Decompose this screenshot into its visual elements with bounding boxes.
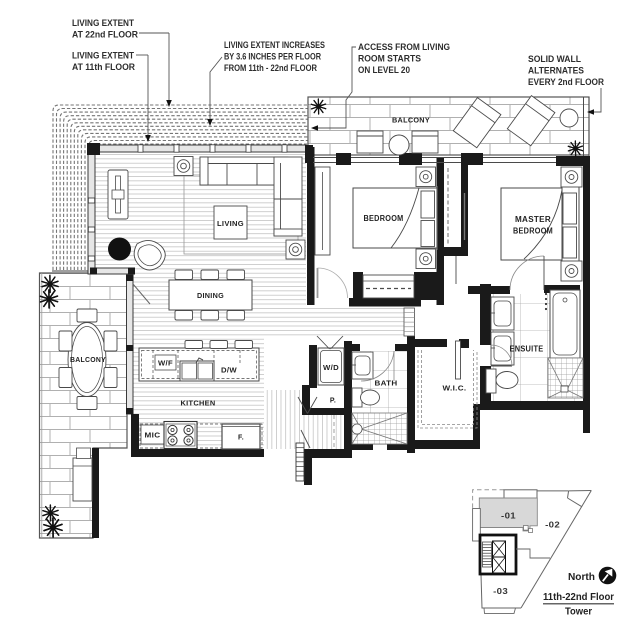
svg-text:W/D: W/D [323,365,339,372]
svg-text:LIVING EXTENT: LIVING EXTENT [72,50,134,61]
svg-text:LIVING EXTENT INCREASES: LIVING EXTENT INCREASES [224,39,325,50]
svg-text:Tower: Tower [565,606,592,618]
svg-text:DINING: DINING [197,291,224,300]
svg-text:W.I.C.: W.I.C. [443,384,467,393]
svg-text:11th-22nd Floor: 11th-22nd Floor [543,591,614,603]
svg-text:MASTER: MASTER [515,215,551,224]
svg-text:North: North [568,571,595,583]
svg-text:BEDROOM: BEDROOM [364,214,404,223]
svg-text:F.: F. [238,435,244,442]
svg-text:ALTERNATES: ALTERNATES [528,65,584,76]
svg-text:BATH: BATH [375,379,398,388]
svg-text:AT 11th FLOOR: AT 11th FLOOR [72,61,135,72]
svg-text:LIVING EXTENT: LIVING EXTENT [72,17,134,28]
svg-text:ROOM STARTS: ROOM STARTS [358,53,421,64]
svg-text:ENSUITE: ENSUITE [510,345,544,354]
svg-text:KITCHEN: KITCHEN [181,399,216,408]
svg-text:MIC: MIC [145,433,161,440]
svg-text:-01: -01 [501,512,516,521]
svg-text:BALCONY: BALCONY [70,355,106,364]
svg-text:-03: -03 [493,587,508,596]
svg-text:FROM 11th - 22nd FLOOR: FROM 11th - 22nd FLOOR [224,62,317,73]
svg-text:-02: -02 [545,521,560,530]
svg-text:SOLID WALL: SOLID WALL [528,53,581,64]
svg-text:ON LEVEL 20: ON LEVEL 20 [358,64,410,75]
svg-text:P.: P. [330,398,336,405]
svg-text:W/F: W/F [158,361,173,368]
svg-text:BALCONY: BALCONY [392,116,430,125]
svg-text:LIVING: LIVING [217,219,244,228]
svg-text:BY 3.6 INCHES PER FLOOR: BY 3.6 INCHES PER FLOOR [224,51,321,62]
svg-text:AT 22nd FLOOR: AT 22nd FLOOR [72,29,138,40]
svg-text:EVERY 2nd FLOOR: EVERY 2nd FLOOR [528,76,604,87]
svg-text:ACCESS FROM LIVING: ACCESS FROM LIVING [358,41,450,52]
svg-text:D/W: D/W [221,368,237,375]
svg-text:BEDROOM: BEDROOM [513,227,553,236]
